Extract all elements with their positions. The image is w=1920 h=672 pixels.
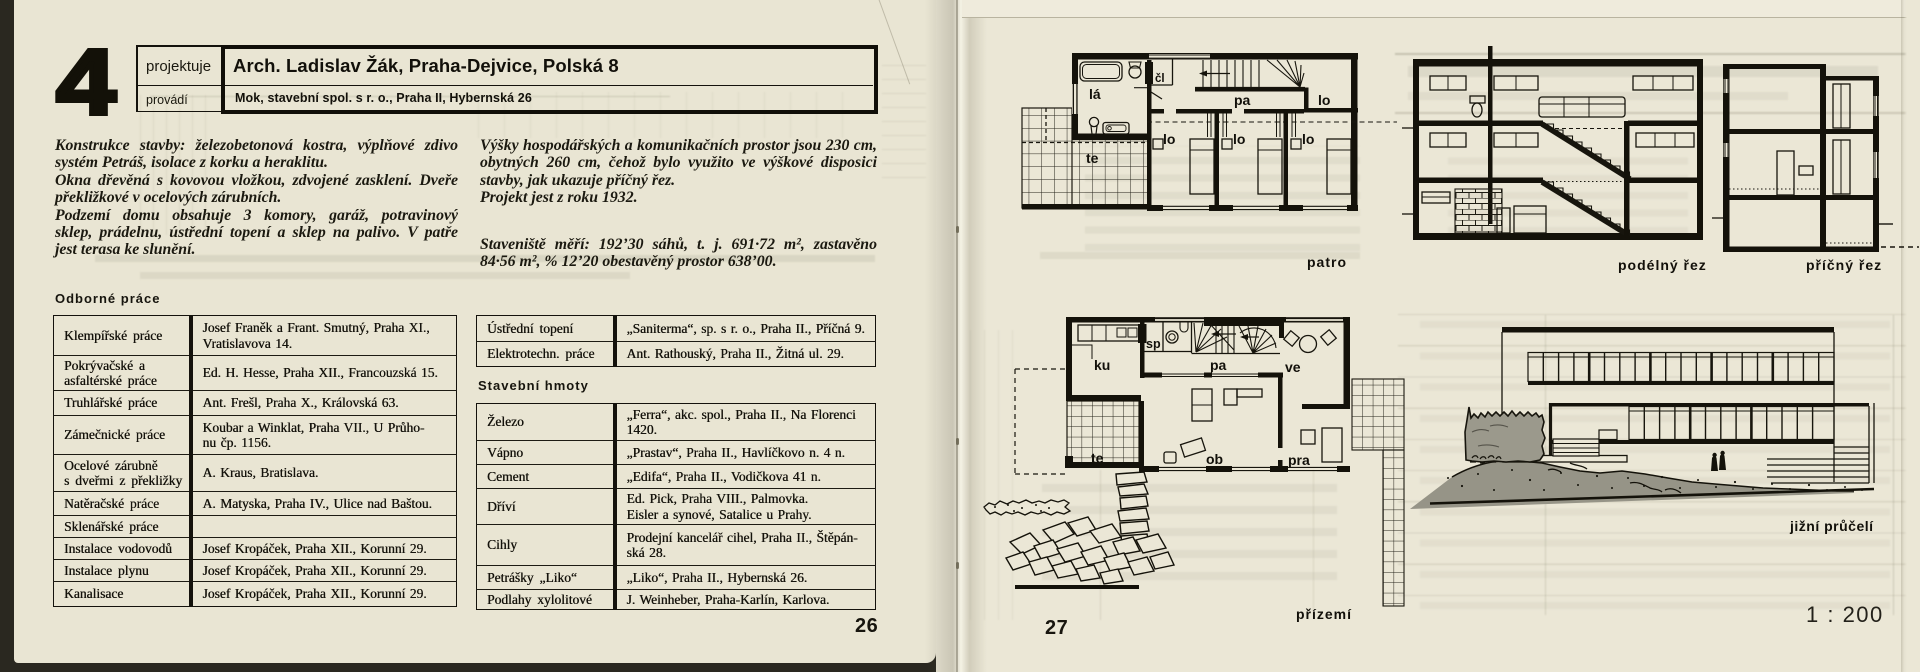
svg-text:jižní průčelí: jižní průčelí (1789, 518, 1874, 534)
svg-text:lá: lá (1089, 86, 1101, 102)
svg-text:ku: ku (1094, 357, 1110, 373)
svg-text:sp: sp (1146, 337, 1161, 351)
svg-text:pa: pa (1234, 92, 1251, 108)
svg-text:ve: ve (1285, 359, 1301, 375)
svg-text:ob: ob (1206, 451, 1223, 467)
svg-text:přízemí: přízemí (1296, 606, 1352, 622)
svg-text:patro: patro (1307, 254, 1347, 270)
svg-text:lo: lo (1318, 92, 1330, 108)
svg-text:1 : 200: 1 : 200 (1806, 602, 1884, 627)
svg-text:lo: lo (1233, 131, 1245, 147)
svg-text:příčný řez: příčný řez (1806, 257, 1882, 273)
svg-text:čl: čl (1155, 73, 1165, 85)
svg-text:podélný řez: podélný řez (1618, 257, 1707, 273)
svg-text:lo: lo (1302, 131, 1314, 147)
svg-text:lo: lo (1163, 131, 1175, 147)
svg-text:te: te (1086, 150, 1099, 166)
svg-text:pra: pra (1288, 452, 1310, 468)
svg-text:pa: pa (1210, 357, 1227, 373)
